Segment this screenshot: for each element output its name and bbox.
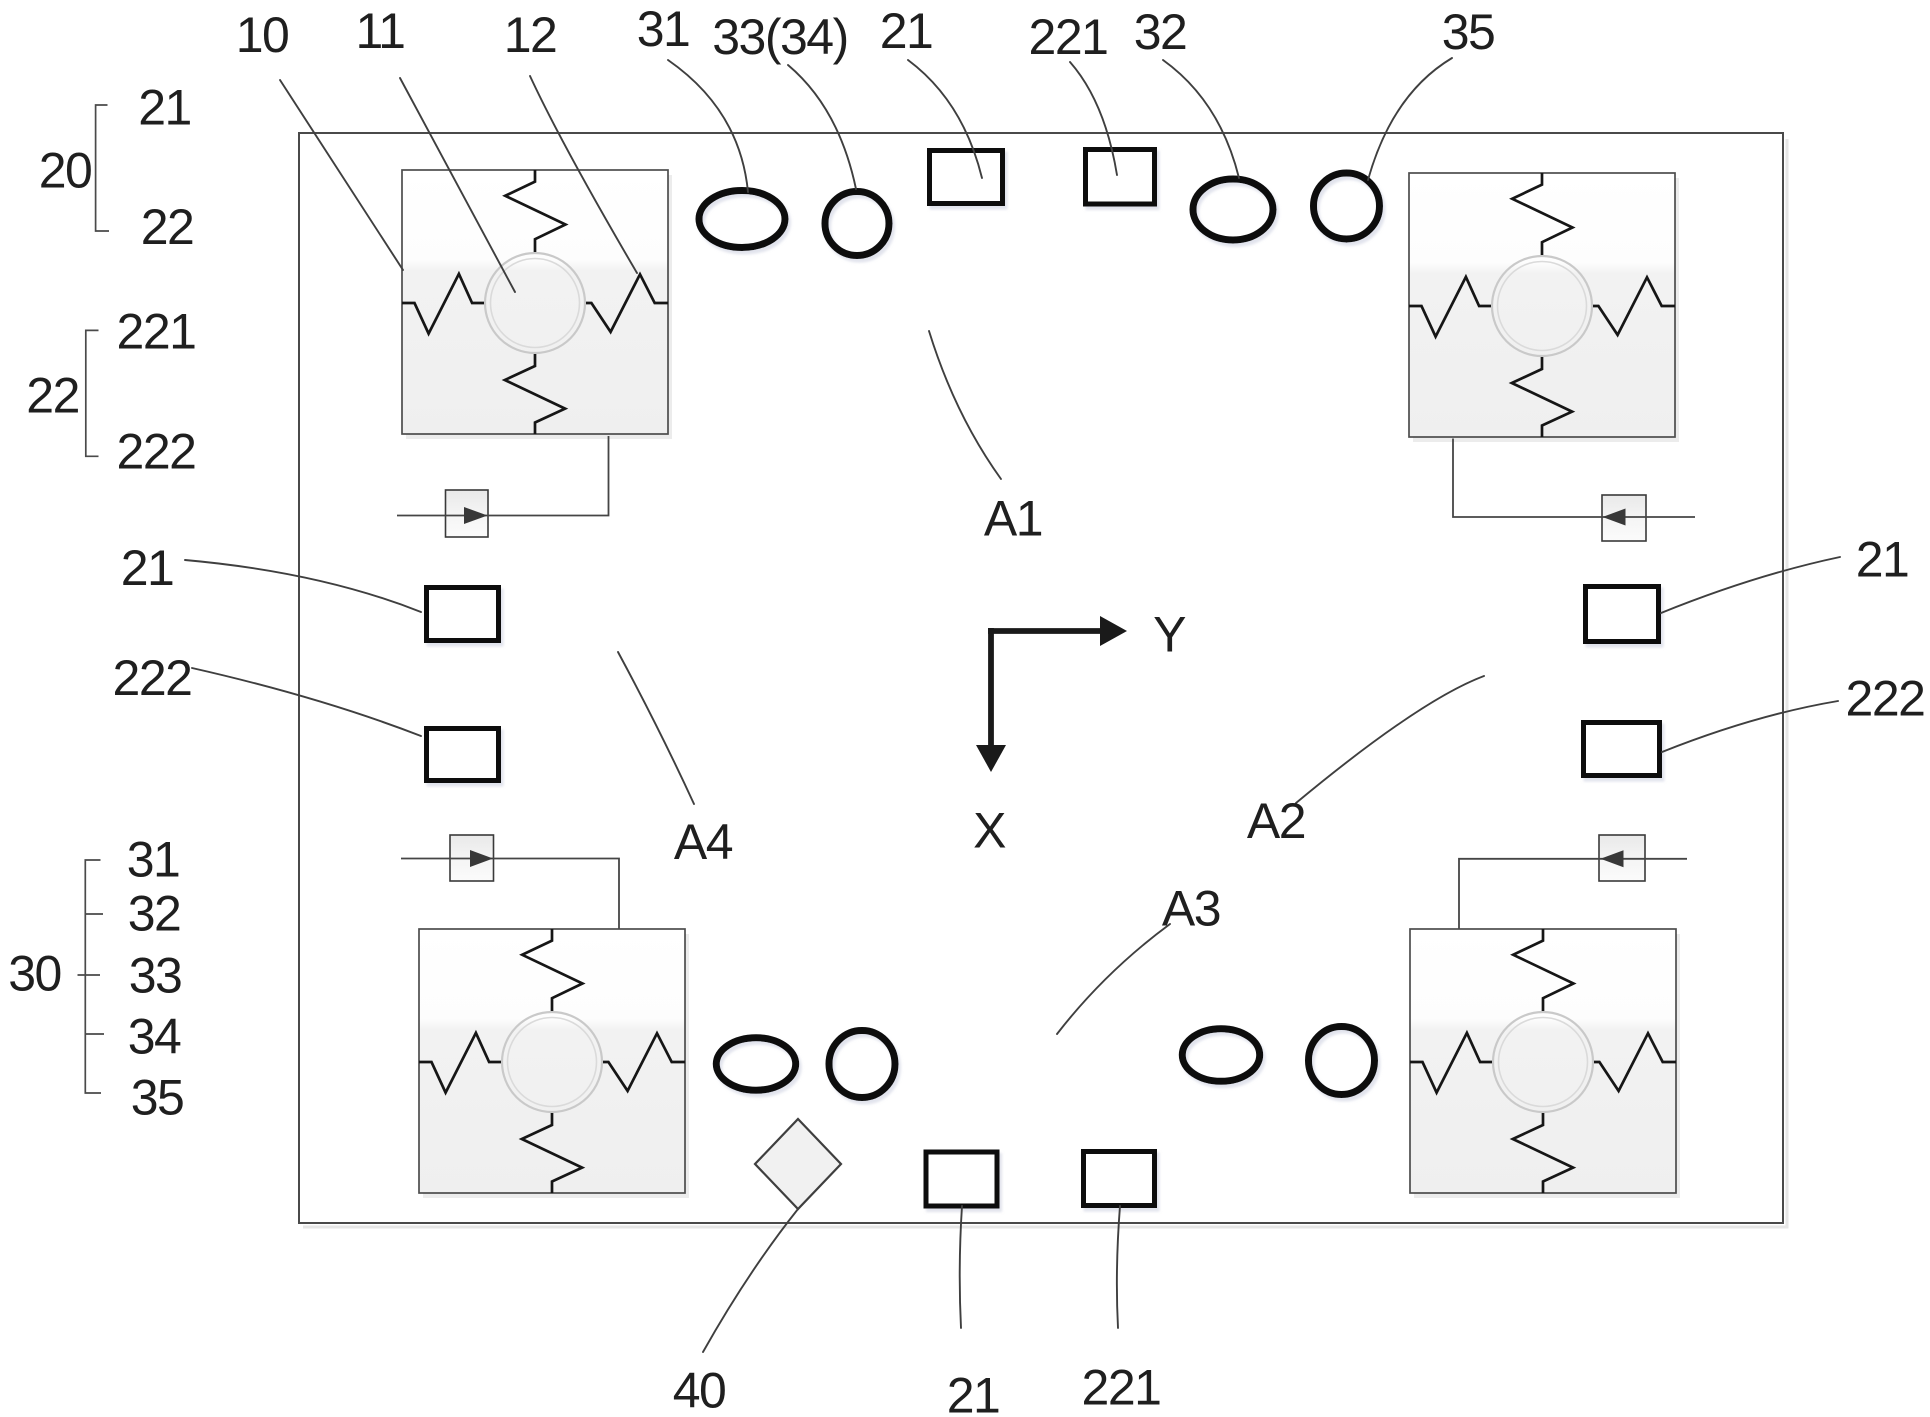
svg-text:35: 35 [1442, 4, 1495, 60]
svg-text:21: 21 [121, 540, 174, 596]
svg-text:Y: Y [1153, 607, 1186, 663]
svg-text:21: 21 [880, 3, 933, 59]
svg-text:31: 31 [127, 832, 180, 888]
svg-text:32: 32 [1134, 4, 1187, 60]
svg-text:221: 221 [1029, 9, 1108, 65]
svg-text:10: 10 [236, 7, 289, 63]
svg-text:40: 40 [673, 1363, 726, 1417]
svg-text:222: 222 [1846, 671, 1925, 727]
svg-text:35: 35 [131, 1070, 184, 1126]
svg-text:22: 22 [141, 199, 194, 255]
svg-text:A3: A3 [1162, 881, 1220, 937]
svg-text:X: X [973, 803, 1006, 859]
svg-text:31: 31 [637, 1, 690, 57]
svg-text:20: 20 [39, 143, 92, 199]
svg-text:12: 12 [504, 7, 557, 63]
svg-text:32: 32 [128, 886, 181, 942]
svg-text:11: 11 [356, 3, 405, 59]
svg-text:21: 21 [138, 80, 191, 136]
svg-text:221: 221 [117, 304, 196, 360]
svg-text:21: 21 [1856, 532, 1909, 588]
svg-text:222: 222 [117, 424, 196, 480]
svg-text:222: 222 [113, 650, 192, 706]
svg-text:22: 22 [26, 368, 79, 424]
svg-text:33: 33 [129, 948, 182, 1004]
svg-text:A1: A1 [984, 491, 1042, 547]
svg-text:A4: A4 [674, 814, 733, 870]
svg-text:21: 21 [947, 1368, 1000, 1417]
svg-text:221: 221 [1082, 1360, 1161, 1416]
svg-text:30: 30 [8, 946, 61, 1002]
svg-text:34: 34 [128, 1009, 181, 1065]
svg-text:A2: A2 [1247, 793, 1305, 849]
svg-text:33(34): 33(34) [712, 9, 848, 65]
